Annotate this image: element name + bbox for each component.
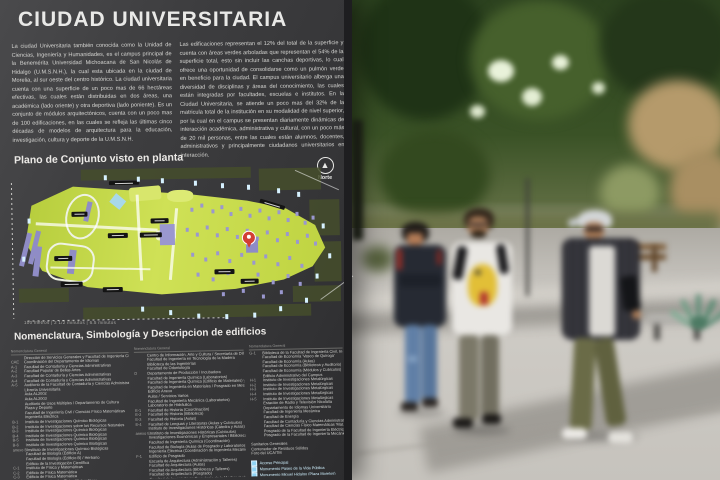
tree-foliage	[380, 130, 490, 220]
pedestrian-2	[448, 208, 518, 436]
intro-paragraph-right: Las edificaciones representan el 12% del…	[179, 39, 344, 153]
pants-leg	[570, 337, 597, 430]
backpack-strap-red	[397, 249, 402, 270]
crossed-arms	[399, 274, 442, 287]
map-label-chip	[71, 212, 87, 217]
agave-plant	[676, 290, 720, 344]
backpack-strap-red	[437, 250, 441, 265]
wooden-post	[652, 246, 657, 272]
tree-trunk	[352, 120, 363, 240]
large-building	[160, 224, 175, 245]
map-label-chip	[61, 282, 83, 287]
map-label-chip	[140, 232, 162, 237]
map-label-chip	[214, 269, 234, 274]
city-block	[259, 167, 321, 190]
map-label-chip	[108, 233, 128, 238]
person-face	[407, 231, 423, 246]
intro-paragraph-left: La ciudad Universitaria también conocida…	[11, 41, 172, 149]
street-label-chip	[109, 181, 139, 186]
person-hand	[632, 310, 641, 319]
lawn-patch	[129, 185, 162, 202]
city-block	[81, 167, 251, 181]
lamp-post	[526, 178, 529, 296]
legend-column: Nomenclatura GeneralCentro de Informació…	[134, 345, 247, 479]
building-legend: Nomenclatura GeneralDirección de Servici…	[11, 343, 346, 480]
photo-of-campus-sign: CIUDAD UNIVERSITARIA La ciudad Universit…	[0, 0, 720, 480]
pedestrian-1	[392, 222, 454, 422]
shoe	[401, 402, 418, 411]
symbol-swatch-icon	[252, 472, 258, 476]
legend-entry-code	[137, 478, 150, 479]
bush	[362, 246, 394, 272]
sky-gap	[552, 55, 569, 70]
measure-line-vertical	[11, 183, 14, 319]
legend-entry-code	[251, 434, 264, 439]
symbol-label: Monumento Miguel Hidalgo (Plaza Morelos)	[260, 471, 336, 476]
map-label-chip	[54, 256, 72, 261]
sky-gap	[592, 82, 605, 94]
map-label-chip	[241, 279, 259, 284]
legend-column: Nomenclatura GeneralG-1Biblioteca de la …	[249, 343, 345, 477]
agave-core	[690, 316, 708, 330]
sunglasses	[585, 227, 603, 231]
shoe	[482, 414, 501, 424]
pedestrian-3	[556, 210, 652, 442]
jeans-leg	[405, 325, 421, 403]
undershirt	[589, 246, 615, 336]
white-sneaker	[608, 432, 633, 443]
bench-leg	[654, 324, 660, 340]
legend-section-heading: Nomenclatura, Simbología y Descripcion d…	[14, 326, 266, 342]
sky-gap	[522, 88, 542, 106]
ripped-knee	[408, 356, 417, 362]
pants-leg	[593, 337, 627, 427]
pants-leg	[481, 335, 499, 416]
map-section-heading: Plano de Conjunto visto en planta	[14, 152, 183, 167]
sign-title: CIUDAD UNIVERSITARIA	[18, 8, 287, 32]
legend-column: Nomenclatura GeneralDirección de Servici…	[11, 347, 132, 480]
lawn-patch	[167, 190, 193, 202]
campus-map	[9, 165, 346, 323]
sign-edge	[344, 0, 352, 480]
tshirt-graphic-tie	[480, 292, 488, 305]
map-scale-caption: 100 metros | 2 1/2 minutos | 6.5 minutos	[24, 320, 116, 325]
sky-gap	[470, 105, 485, 118]
edge-markers	[9, 171, 12, 176]
information-sign-panel: CIUDAD UNIVERSITARIA La ciudad Universit…	[0, 0, 352, 480]
shoe	[422, 398, 438, 407]
white-sneaker	[562, 428, 587, 439]
shoe	[453, 418, 473, 428]
symbol-label: Acceso Principal	[259, 460, 288, 466]
map-label-chip	[103, 287, 123, 292]
glasses	[469, 223, 487, 226]
tshirt-graphic-detail	[475, 270, 481, 275]
jeans-leg	[422, 325, 437, 399]
pants-leg	[459, 335, 479, 420]
beard	[471, 230, 486, 238]
map-label-chip	[151, 218, 169, 223]
city-block	[19, 288, 69, 303]
person-hair-top	[402, 224, 428, 233]
sky-gap	[488, 60, 514, 82]
